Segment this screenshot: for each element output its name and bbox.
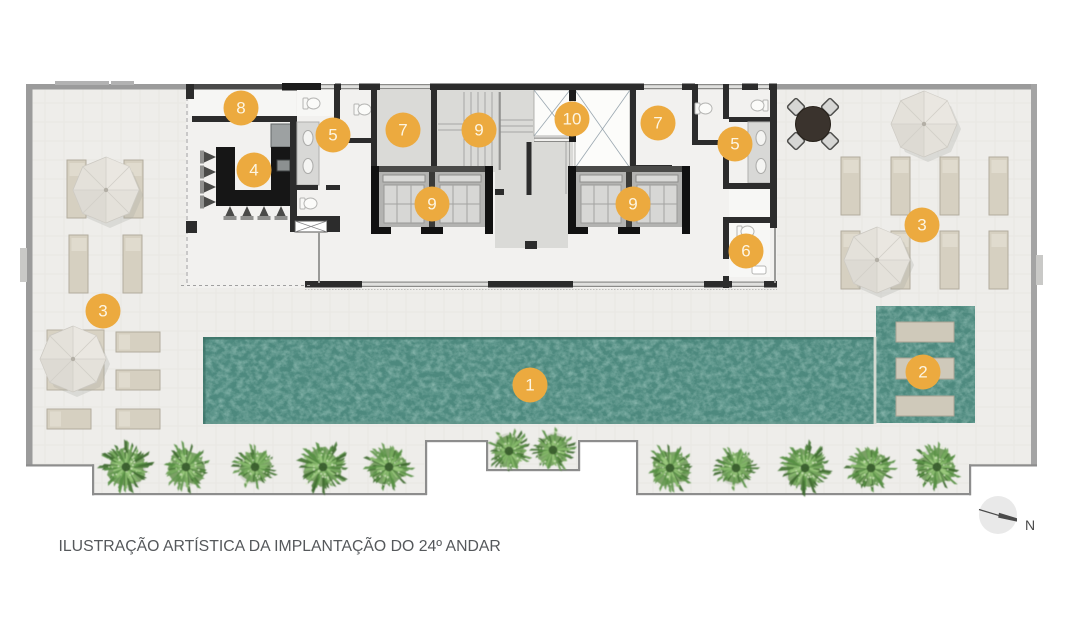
svg-text:8: 8 <box>236 99 245 118</box>
svg-text:9: 9 <box>628 195 637 214</box>
svg-text:9: 9 <box>474 121 483 140</box>
svg-text:6: 6 <box>741 242 750 261</box>
svg-text:N: N <box>1025 517 1035 533</box>
svg-text:7: 7 <box>653 114 662 133</box>
svg-text:7: 7 <box>398 121 407 140</box>
svg-text:1: 1 <box>525 376 534 395</box>
svg-text:5: 5 <box>730 135 739 154</box>
svg-text:10: 10 <box>563 110 582 129</box>
svg-text:9: 9 <box>427 195 436 214</box>
svg-text:3: 3 <box>917 216 926 235</box>
svg-text:3: 3 <box>98 302 107 321</box>
svg-text:ILUSTRAÇÃO ARTÍSTICA DA IMPLAN: ILUSTRAÇÃO ARTÍSTICA DA IMPLANTAÇÃO DO 2… <box>59 535 501 555</box>
svg-text:4: 4 <box>249 161 258 180</box>
svg-text:2: 2 <box>918 363 927 382</box>
svg-text:5: 5 <box>328 126 337 145</box>
